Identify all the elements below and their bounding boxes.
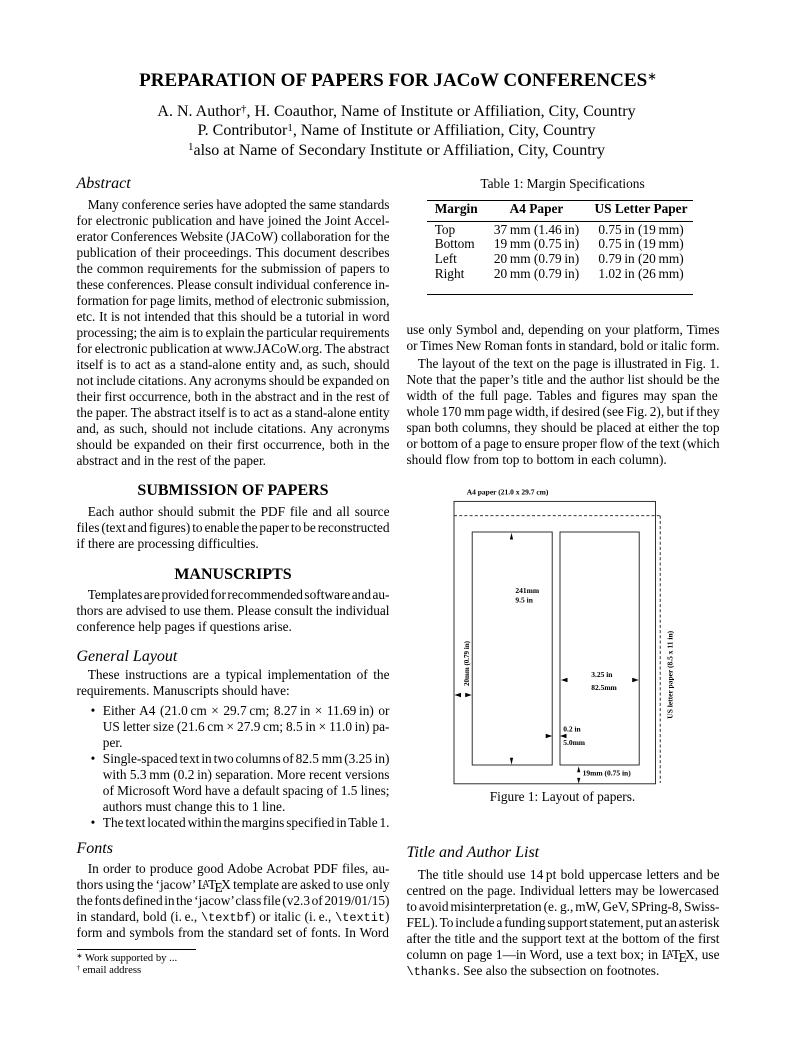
svg-text:3.25 in: 3.25 in: [591, 670, 613, 679]
svg-text:5.0mm: 5.0mm: [563, 738, 586, 747]
svg-text:20mm (0.79 in): 20mm (0.79 in): [463, 640, 471, 686]
svg-text:A4 paper (21.0 x 29.7 cm): A4 paper (21.0 x 29.7 cm): [467, 487, 549, 496]
svg-text:0.2 in: 0.2 in: [563, 725, 581, 734]
svg-text:US letter paper (8.5 x 11 in): US letter paper (8.5 x 11 in): [666, 630, 675, 718]
svg-text:9.5 in: 9.5 in: [515, 596, 533, 605]
svg-text:19mm (0.75 in): 19mm (0.75 in): [583, 769, 632, 778]
svg-text:241mm: 241mm: [515, 586, 539, 595]
svg-text:82.5mm: 82.5mm: [591, 683, 617, 692]
